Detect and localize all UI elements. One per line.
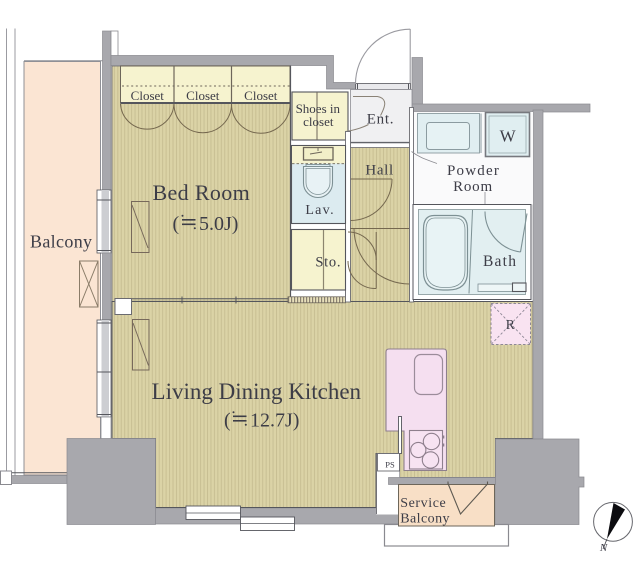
svg-text:(: ( (224, 410, 231, 432)
svg-text:Hall: Hall (365, 162, 393, 178)
svg-text:W: W (500, 127, 517, 146)
svg-text:Balcony: Balcony (30, 232, 92, 252)
svg-text:Lav.: Lav. (305, 203, 335, 218)
svg-text:Closet: Closet (131, 88, 165, 103)
svg-text:Room: Room (453, 179, 493, 195)
svg-text:N: N (599, 542, 608, 554)
svg-text:Closet: Closet (186, 88, 220, 103)
svg-text:5.0J): 5.0J) (199, 213, 238, 235)
svg-text:Sto.: Sto. (315, 255, 341, 271)
svg-text:(: ( (173, 213, 180, 235)
svg-text:closet: closet (303, 114, 334, 129)
svg-text:Ent.: Ent. (367, 111, 394, 127)
svg-text:Bed Room: Bed Room (153, 180, 251, 205)
svg-text:12.7J): 12.7J) (250, 410, 299, 432)
svg-text:Living Dining Kitchen: Living Dining Kitchen (152, 379, 362, 404)
svg-text:PS: PS (385, 460, 395, 470)
svg-text:Balcony: Balcony (400, 512, 450, 527)
svg-text:Bath: Bath (483, 253, 517, 270)
svg-text:Closet: Closet (244, 88, 278, 103)
svg-text:Powder: Powder (447, 163, 500, 179)
svg-text:Service: Service (400, 496, 446, 511)
svg-text:R: R (506, 317, 515, 332)
